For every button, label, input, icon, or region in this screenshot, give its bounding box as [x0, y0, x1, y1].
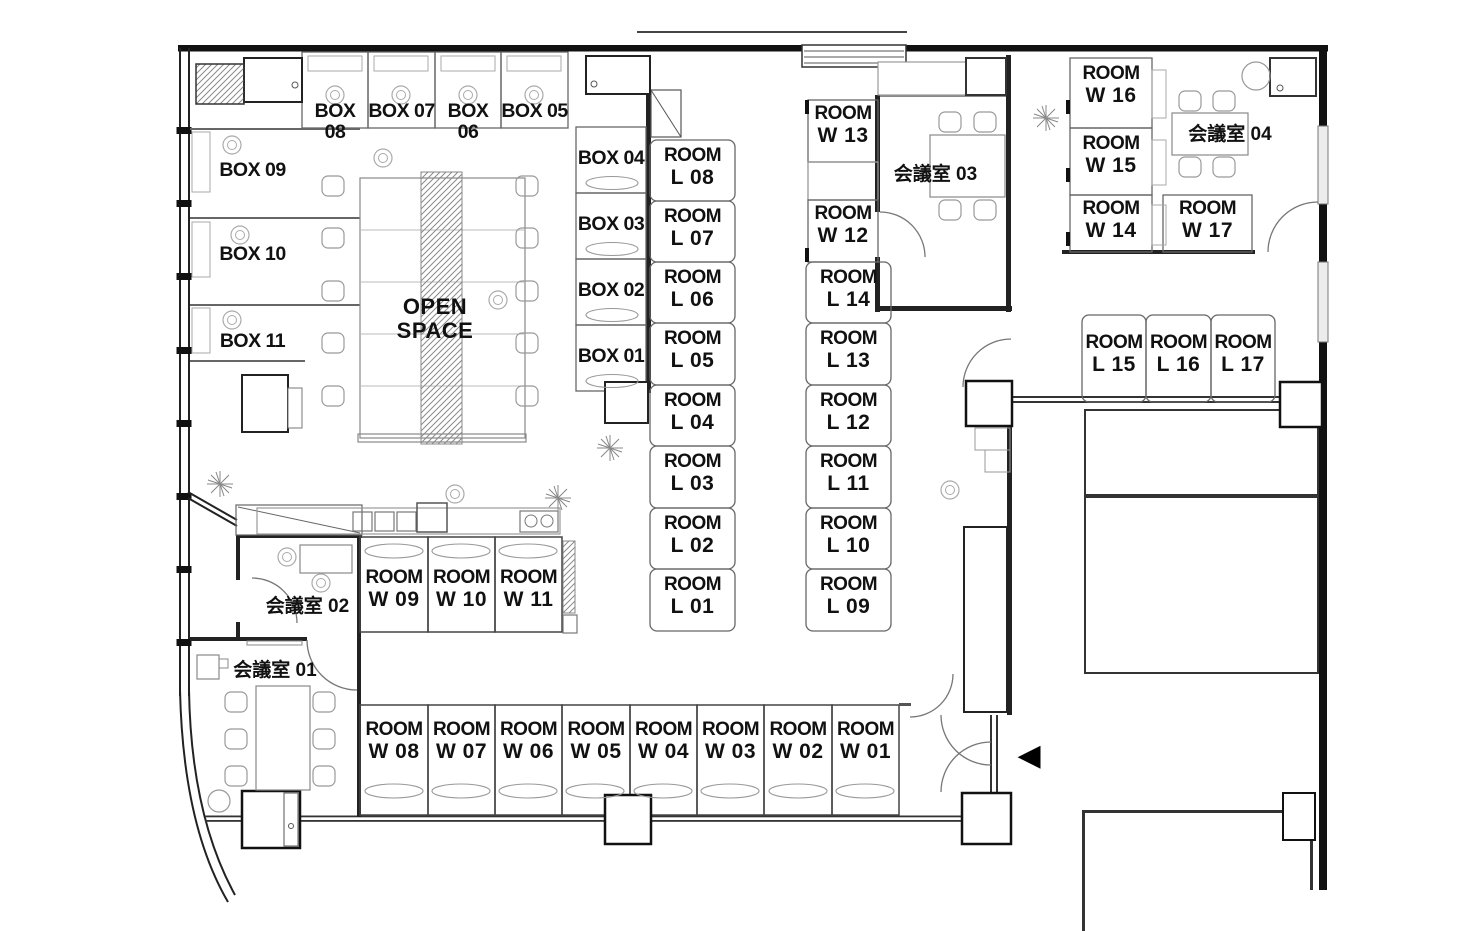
door-arc-meeting-04: [1268, 202, 1318, 252]
room-w03-label: ROOMW 03: [697, 720, 764, 763]
room-w17-label: ROOMW 17: [1163, 199, 1252, 242]
room-l13-label: ROOML 13: [806, 329, 891, 372]
box-04-label: BOX 04: [576, 148, 646, 169]
room-w15-label: ROOMW 15: [1070, 134, 1152, 177]
meeting-room-03-label: 会議室 03: [888, 165, 983, 186]
box-03-label: BOX 03: [576, 214, 646, 235]
room-w08-label: ROOMW 08: [360, 720, 428, 763]
door-arc-exit-lower: [941, 742, 991, 792]
room-l17-label: ROOML 17: [1211, 333, 1275, 376]
open-space-label: OPEN SPACE: [365, 295, 505, 343]
room-l10-label: ROOML 10: [806, 514, 891, 557]
room-l12-label: ROOML 12: [806, 391, 891, 434]
room-l14-label: ROOML 14: [806, 268, 891, 311]
room-l05-label: ROOML 05: [650, 329, 735, 372]
room-w11-label: ROOMW 11: [495, 568, 562, 611]
room-w09-label: ROOMW 09: [360, 568, 428, 611]
door-arc-meeting-03: [880, 212, 925, 257]
room-l07-label: ROOML 07: [650, 207, 735, 250]
room-w06-label: ROOMW 06: [495, 720, 562, 763]
meeting-room-04-label: 会議室 04: [1180, 125, 1280, 146]
box-07-label: BOX 07: [368, 101, 435, 122]
room-l06-label: ROOML 06: [650, 268, 735, 311]
window-segments: [177, 126, 1329, 646]
room-l16-label: ROOML 16: [1146, 333, 1211, 376]
meeting-room-01-label: 会議室 01: [215, 661, 335, 682]
box-02-label: BOX 02: [576, 280, 646, 301]
box-11-label: BOX 11: [210, 331, 295, 352]
door-arc-exit-upper: [941, 715, 991, 765]
box-08-label: BOX 08: [302, 101, 368, 143]
box-06-label: BOX 06: [435, 101, 501, 143]
entrance-arrow-icon: ◀: [1012, 741, 1046, 771]
room-w01-label: ROOMW 01: [832, 720, 899, 763]
room-w04-label: ROOMW 04: [630, 720, 697, 763]
outer-walls: [178, 31, 1328, 902]
room-w14-label: ROOMW 14: [1070, 199, 1152, 242]
room-l02-label: ROOML 02: [650, 514, 735, 557]
box-09-label: BOX 09: [210, 160, 295, 181]
box-10-label: BOX 10: [210, 244, 295, 265]
floor-plan: OPEN SPACE BOX 08 BOX 07 BOX 06 BOX 05 B…: [0, 0, 1475, 931]
room-l04-label: ROOML 04: [650, 391, 735, 434]
room-w16-label: ROOMW 16: [1070, 64, 1152, 107]
box-05-label: BOX 05: [501, 101, 568, 122]
room-l03-label: ROOML 03: [650, 452, 735, 495]
room-w05-label: ROOMW 05: [562, 720, 630, 763]
room-l01-label: ROOML 01: [650, 575, 735, 618]
room-w10-label: ROOMW 10: [428, 568, 495, 611]
room-l11-label: ROOML 11: [806, 452, 891, 495]
meeting-room-02-label: 会議室 02: [255, 597, 360, 618]
box-01-label: BOX 01: [576, 346, 646, 367]
room-l15-label: ROOML 15: [1082, 333, 1146, 376]
room-w02-label: ROOMW 02: [764, 720, 832, 763]
door-arc-corridor: [910, 674, 953, 717]
room-l08-label: ROOML 08: [650, 146, 735, 189]
room-w13-label: ROOMW 13: [808, 104, 878, 147]
room-w07-label: ROOMW 07: [428, 720, 495, 763]
room-w12-label: ROOMW 12: [808, 204, 878, 247]
room-l09-label: ROOML 09: [806, 575, 891, 618]
